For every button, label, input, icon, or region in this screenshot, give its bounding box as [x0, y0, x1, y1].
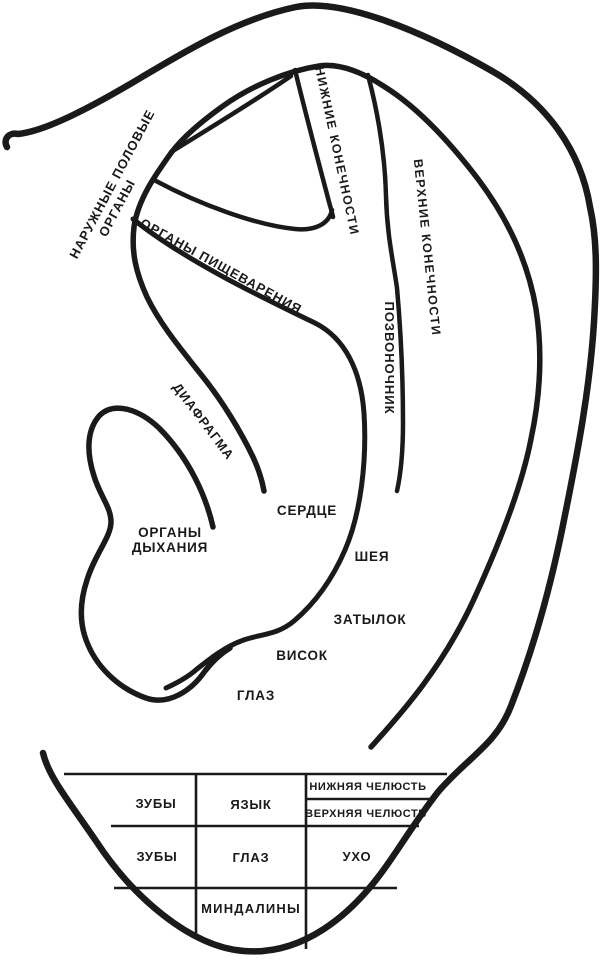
triangular-fossa-upper-line [171, 76, 291, 152]
lobe-cell-tongue: ЯЗЫК [230, 797, 271, 812]
lobe-cell-lower-jaw: НИЖНЯЯ ЧЕЛЮСТЬ [309, 781, 426, 793]
zone-label-occiput: ЗАТЫЛОК [334, 612, 407, 627]
lobe-cell-teeth-row1: ЗУБЫ [135, 796, 176, 811]
zone-label-neck: ШЕЯ [355, 549, 390, 564]
zone-label-eye: ГЛАЗ [237, 688, 275, 703]
zone-label-respiratory-line1: ОРГАНЫ [138, 525, 202, 540]
triangular-fossa-lower-line [156, 181, 332, 229]
zone-label-heart: СЕРДЦЕ [277, 503, 337, 518]
diagram-canvas: НАРУЖНЫЕ ПОЛОВЫЕ ОРГАНЫ ОРГАНЫ ПИЩЕВАРЕН… [0, 0, 600, 967]
zone-label-respiratory-line2: ДЫХАНИЯ [132, 540, 208, 555]
lobe-cell-upper-jaw: ВЕРХНЯЯ ЧЕЛЮСТЬ [305, 808, 427, 820]
zone-label-upper-limbs: ВЕРХНИЕ КОНЕЧНОСТИ [411, 158, 444, 336]
zone-label-spine: ПОЗВОНОЧНИК [382, 301, 397, 414]
lobe-cell-teeth-row2: ЗУБЫ [136, 849, 177, 864]
zone-label-lower-limbs: НИЖНИЕ КОНЕЧНОСТИ [312, 65, 362, 236]
lobe-cell-eye: ГЛАЗ [233, 850, 270, 865]
zone-label-temple: ВИСОК [276, 648, 328, 663]
lobe-cell-ear: УХО [343, 849, 372, 864]
zone-label-external-genitals-line1: НАРУЖНЫЕ ПОЛОВЫЕ [66, 107, 157, 261]
spine-right-boundary-line [368, 75, 403, 491]
lobe-cell-tonsils: МИНДАЛИНЫ [201, 901, 301, 916]
ear-reflexology-diagram: НАРУЖНЫЕ ПОЛОВЫЕ ОРГАНЫ ОРГАНЫ ПИЩЕВАРЕН… [0, 0, 600, 967]
zone-label-digestive-organs: ОРГАНЫ ПИЩЕВАРЕНИЯ [138, 215, 305, 317]
